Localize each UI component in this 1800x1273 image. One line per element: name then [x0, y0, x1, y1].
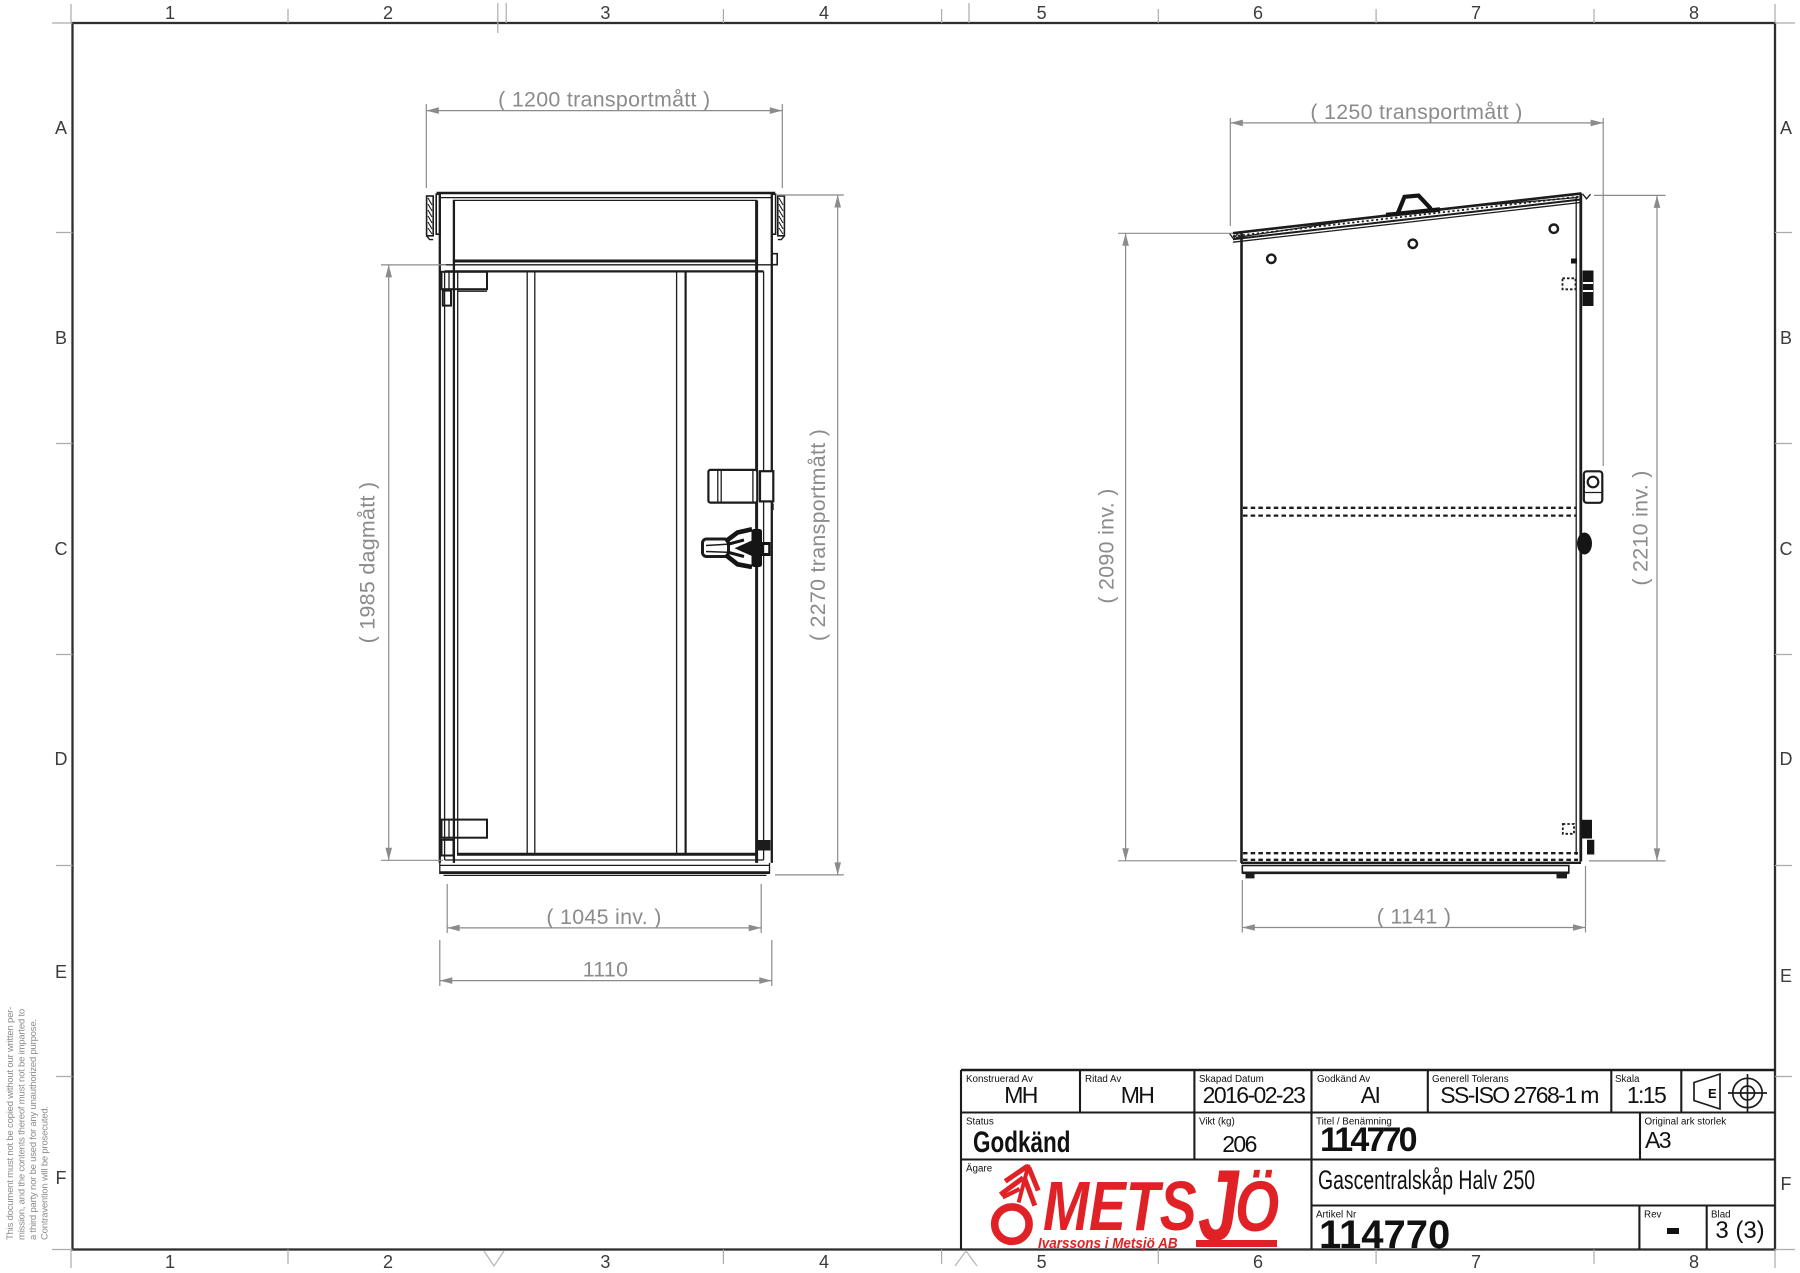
svg-text:Ritad Av: Ritad Av: [1085, 1074, 1121, 1085]
svg-text:Contravention will be prosecut: Contravention will be prosecuted.: [40, 1106, 51, 1240]
svg-text:Ägare: Ägare: [966, 1164, 993, 1175]
svg-text:1110: 1110: [583, 958, 629, 982]
svg-text:Gascentralskåp Halv 250: Gascentralskåp Halv 250: [1318, 1165, 1535, 1195]
svg-text:B: B: [1780, 328, 1792, 348]
svg-text:A3: A3: [1645, 1127, 1671, 1153]
svg-text:SS-ISO 2768-1 m: SS-ISO 2768-1 m: [1440, 1082, 1598, 1108]
svg-text:B: B: [55, 328, 67, 348]
svg-text:Ivarssons i Metsjö AB: Ivarssons i Metsjö AB: [1038, 1235, 1178, 1252]
svg-text:This document must not be copi: This document must not be copied without…: [5, 1007, 16, 1240]
svg-text:( 1045 inv. ): ( 1045 inv. ): [546, 905, 661, 929]
svg-text:114770: 114770: [1320, 1121, 1417, 1159]
svg-text:Vikt (kg): Vikt (kg): [1199, 1117, 1235, 1128]
svg-text:8: 8: [1689, 3, 1699, 23]
svg-text:3 (3): 3 (3): [1715, 1217, 1764, 1244]
svg-text:E: E: [55, 962, 67, 982]
svg-text:4: 4: [819, 1252, 829, 1272]
svg-text:( 2270 transportmått ): ( 2270 transportmått ): [806, 429, 830, 641]
svg-text:D: D: [55, 749, 68, 769]
svg-text:( 1250 transportmått ): ( 1250 transportmått ): [1310, 100, 1522, 124]
svg-text:6: 6: [1253, 1252, 1263, 1272]
svg-text:8: 8: [1689, 1252, 1699, 1272]
svg-text:1: 1: [165, 1252, 175, 1272]
svg-text:3: 3: [600, 3, 610, 23]
svg-text:( 2090 inv. ): ( 2090 inv. ): [1095, 488, 1119, 603]
svg-text:F: F: [1781, 1174, 1792, 1194]
svg-text:1:15: 1:15: [1627, 1082, 1666, 1108]
svg-text:MH: MH: [1121, 1082, 1154, 1108]
svg-text:C: C: [55, 539, 68, 559]
svg-text:MH: MH: [1004, 1082, 1037, 1108]
svg-text:Rev: Rev: [1644, 1210, 1662, 1221]
svg-text:AI: AI: [1361, 1082, 1380, 1108]
svg-text:C: C: [1780, 539, 1793, 559]
svg-text:7: 7: [1471, 1252, 1481, 1272]
svg-text:6: 6: [1253, 3, 1263, 23]
svg-text:4: 4: [819, 3, 829, 23]
svg-text:5: 5: [1037, 3, 1047, 23]
svg-text:Godkänd: Godkänd: [973, 1125, 1070, 1159]
svg-text:2: 2: [383, 1252, 393, 1272]
svg-text:D: D: [1780, 749, 1793, 769]
svg-text:( 1141 ): ( 1141 ): [1377, 904, 1452, 928]
svg-text:114770: 114770: [1319, 1213, 1450, 1257]
svg-text:2016-02-23: 2016-02-23: [1203, 1082, 1305, 1108]
svg-text:3: 3: [600, 1252, 610, 1272]
svg-text:1: 1: [165, 3, 175, 23]
svg-text:mission, and the contents ther: mission, and the contents thereof must n…: [17, 1009, 28, 1240]
svg-text:Ö: Ö: [1235, 1167, 1279, 1247]
svg-text:( 2210 inv. ): ( 2210 inv. ): [1629, 470, 1653, 585]
svg-text:Original ark storlek: Original ark storlek: [1645, 1117, 1727, 1128]
svg-text:E: E: [1708, 1086, 1717, 1101]
svg-text:2: 2: [383, 3, 393, 23]
svg-text:E: E: [1780, 966, 1792, 986]
svg-text:5: 5: [1037, 1252, 1047, 1272]
svg-text:A: A: [55, 118, 67, 138]
svg-text:A: A: [1780, 118, 1792, 138]
svg-text:F: F: [56, 1168, 67, 1188]
svg-text:a third party nor be used for: a third party nor be used for any unauth…: [28, 1019, 39, 1240]
svg-text:( 1200 transportmått ): ( 1200 transportmått ): [498, 88, 710, 112]
svg-text:( 1985 dagmått ): ( 1985 dagmått ): [356, 482, 380, 644]
svg-text:7: 7: [1471, 3, 1481, 23]
